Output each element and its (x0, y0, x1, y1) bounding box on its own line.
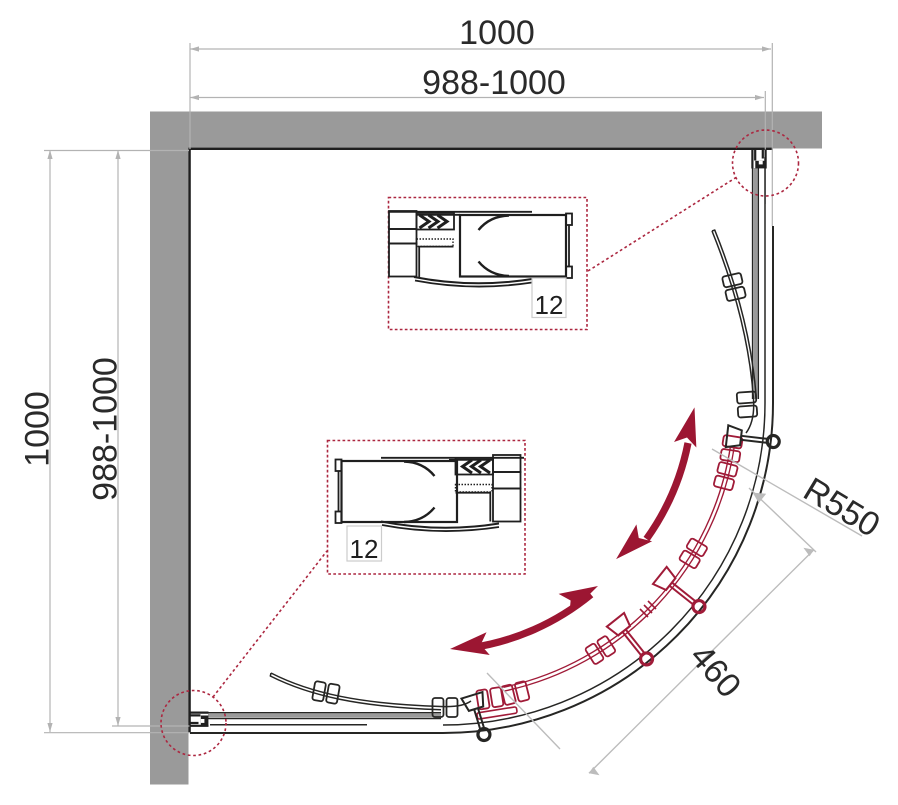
svg-text:988-1000: 988-1000 (87, 357, 125, 501)
svg-text:1000: 1000 (459, 14, 535, 52)
svg-text:12: 12 (535, 290, 564, 320)
svg-text:1000: 1000 (19, 391, 57, 467)
svg-text:988-1000: 988-1000 (422, 64, 566, 102)
svg-text:12: 12 (350, 534, 379, 564)
